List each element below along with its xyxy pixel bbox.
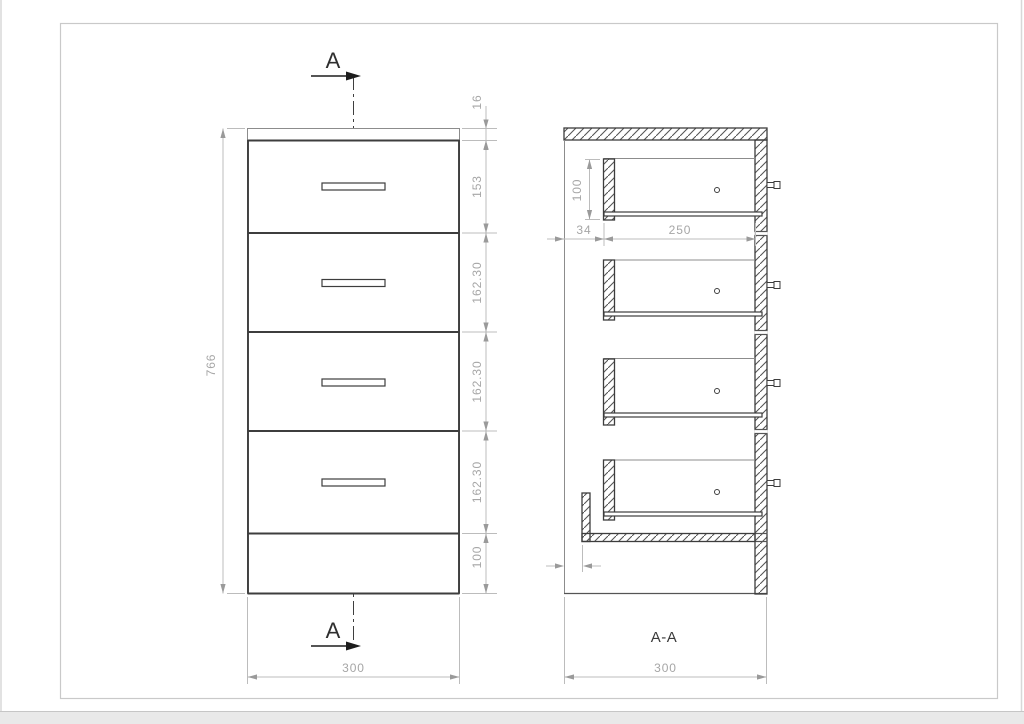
dim-row-label: 162.30 [470, 261, 484, 303]
top-panel-section [564, 128, 767, 140]
drawer-handle [322, 379, 385, 386]
drawer-bottom-panel [604, 212, 762, 216]
section-title: A-A [651, 629, 678, 646]
drawer-handle [322, 280, 385, 287]
drawer-back-section [604, 159, 615, 220]
knob-screw [715, 389, 720, 394]
drawer-knob-cap [774, 480, 780, 487]
drawer-knob [767, 183, 774, 188]
sheet-background [0, 0, 1024, 724]
drawer-handle [322, 479, 385, 486]
drawer-knob-cap [774, 380, 780, 387]
drawer-knob-cap [774, 282, 780, 289]
drawer-knob-cap [774, 182, 780, 189]
dim-top-panel-label: 16 [470, 94, 484, 109]
dim-back-offset-label: 34 [576, 223, 591, 237]
knob-screw [715, 490, 720, 495]
dim-drawer-back-height-label: 100 [570, 179, 584, 202]
dim-overall-height-label: 766 [204, 354, 218, 377]
front-view: A A 766 [204, 48, 497, 684]
cabinet-outline [248, 129, 460, 594]
drawer-bottom-panel [604, 512, 762, 516]
dim-row-label: 100 [470, 546, 484, 569]
bottom-panel-section [582, 534, 755, 542]
drawer-bottom-panel [604, 413, 762, 417]
cad-drawing: A A 766 [0, 0, 1024, 724]
section-arrow-bottom-label: A [326, 618, 341, 643]
cad-viewport: A A 766 [0, 0, 1024, 724]
drawer-knob [767, 283, 774, 288]
section-arrow-top-label: A [326, 48, 341, 73]
drawer-knob [767, 481, 774, 486]
dim-section-width-label: 300 [654, 661, 677, 675]
dim-row-label: 162.30 [470, 461, 484, 503]
dim-front-width-label: 300 [342, 661, 365, 675]
knob-screw [715, 289, 720, 294]
dim-row-label: 153 [470, 175, 484, 198]
dim-drawer-depth-label: 250 [669, 223, 692, 237]
drawer-back-section [604, 460, 615, 520]
drawer-back-section [604, 260, 615, 320]
drawer-knob [767, 381, 774, 386]
knob-screw [715, 188, 720, 193]
front-wall-section [755, 140, 767, 594]
dim-row-label: 162.30 [470, 360, 484, 402]
viewport-bottom-band [0, 712, 1024, 724]
drawer-bottom-panel [604, 312, 762, 316]
drawer-handle [322, 183, 385, 190]
